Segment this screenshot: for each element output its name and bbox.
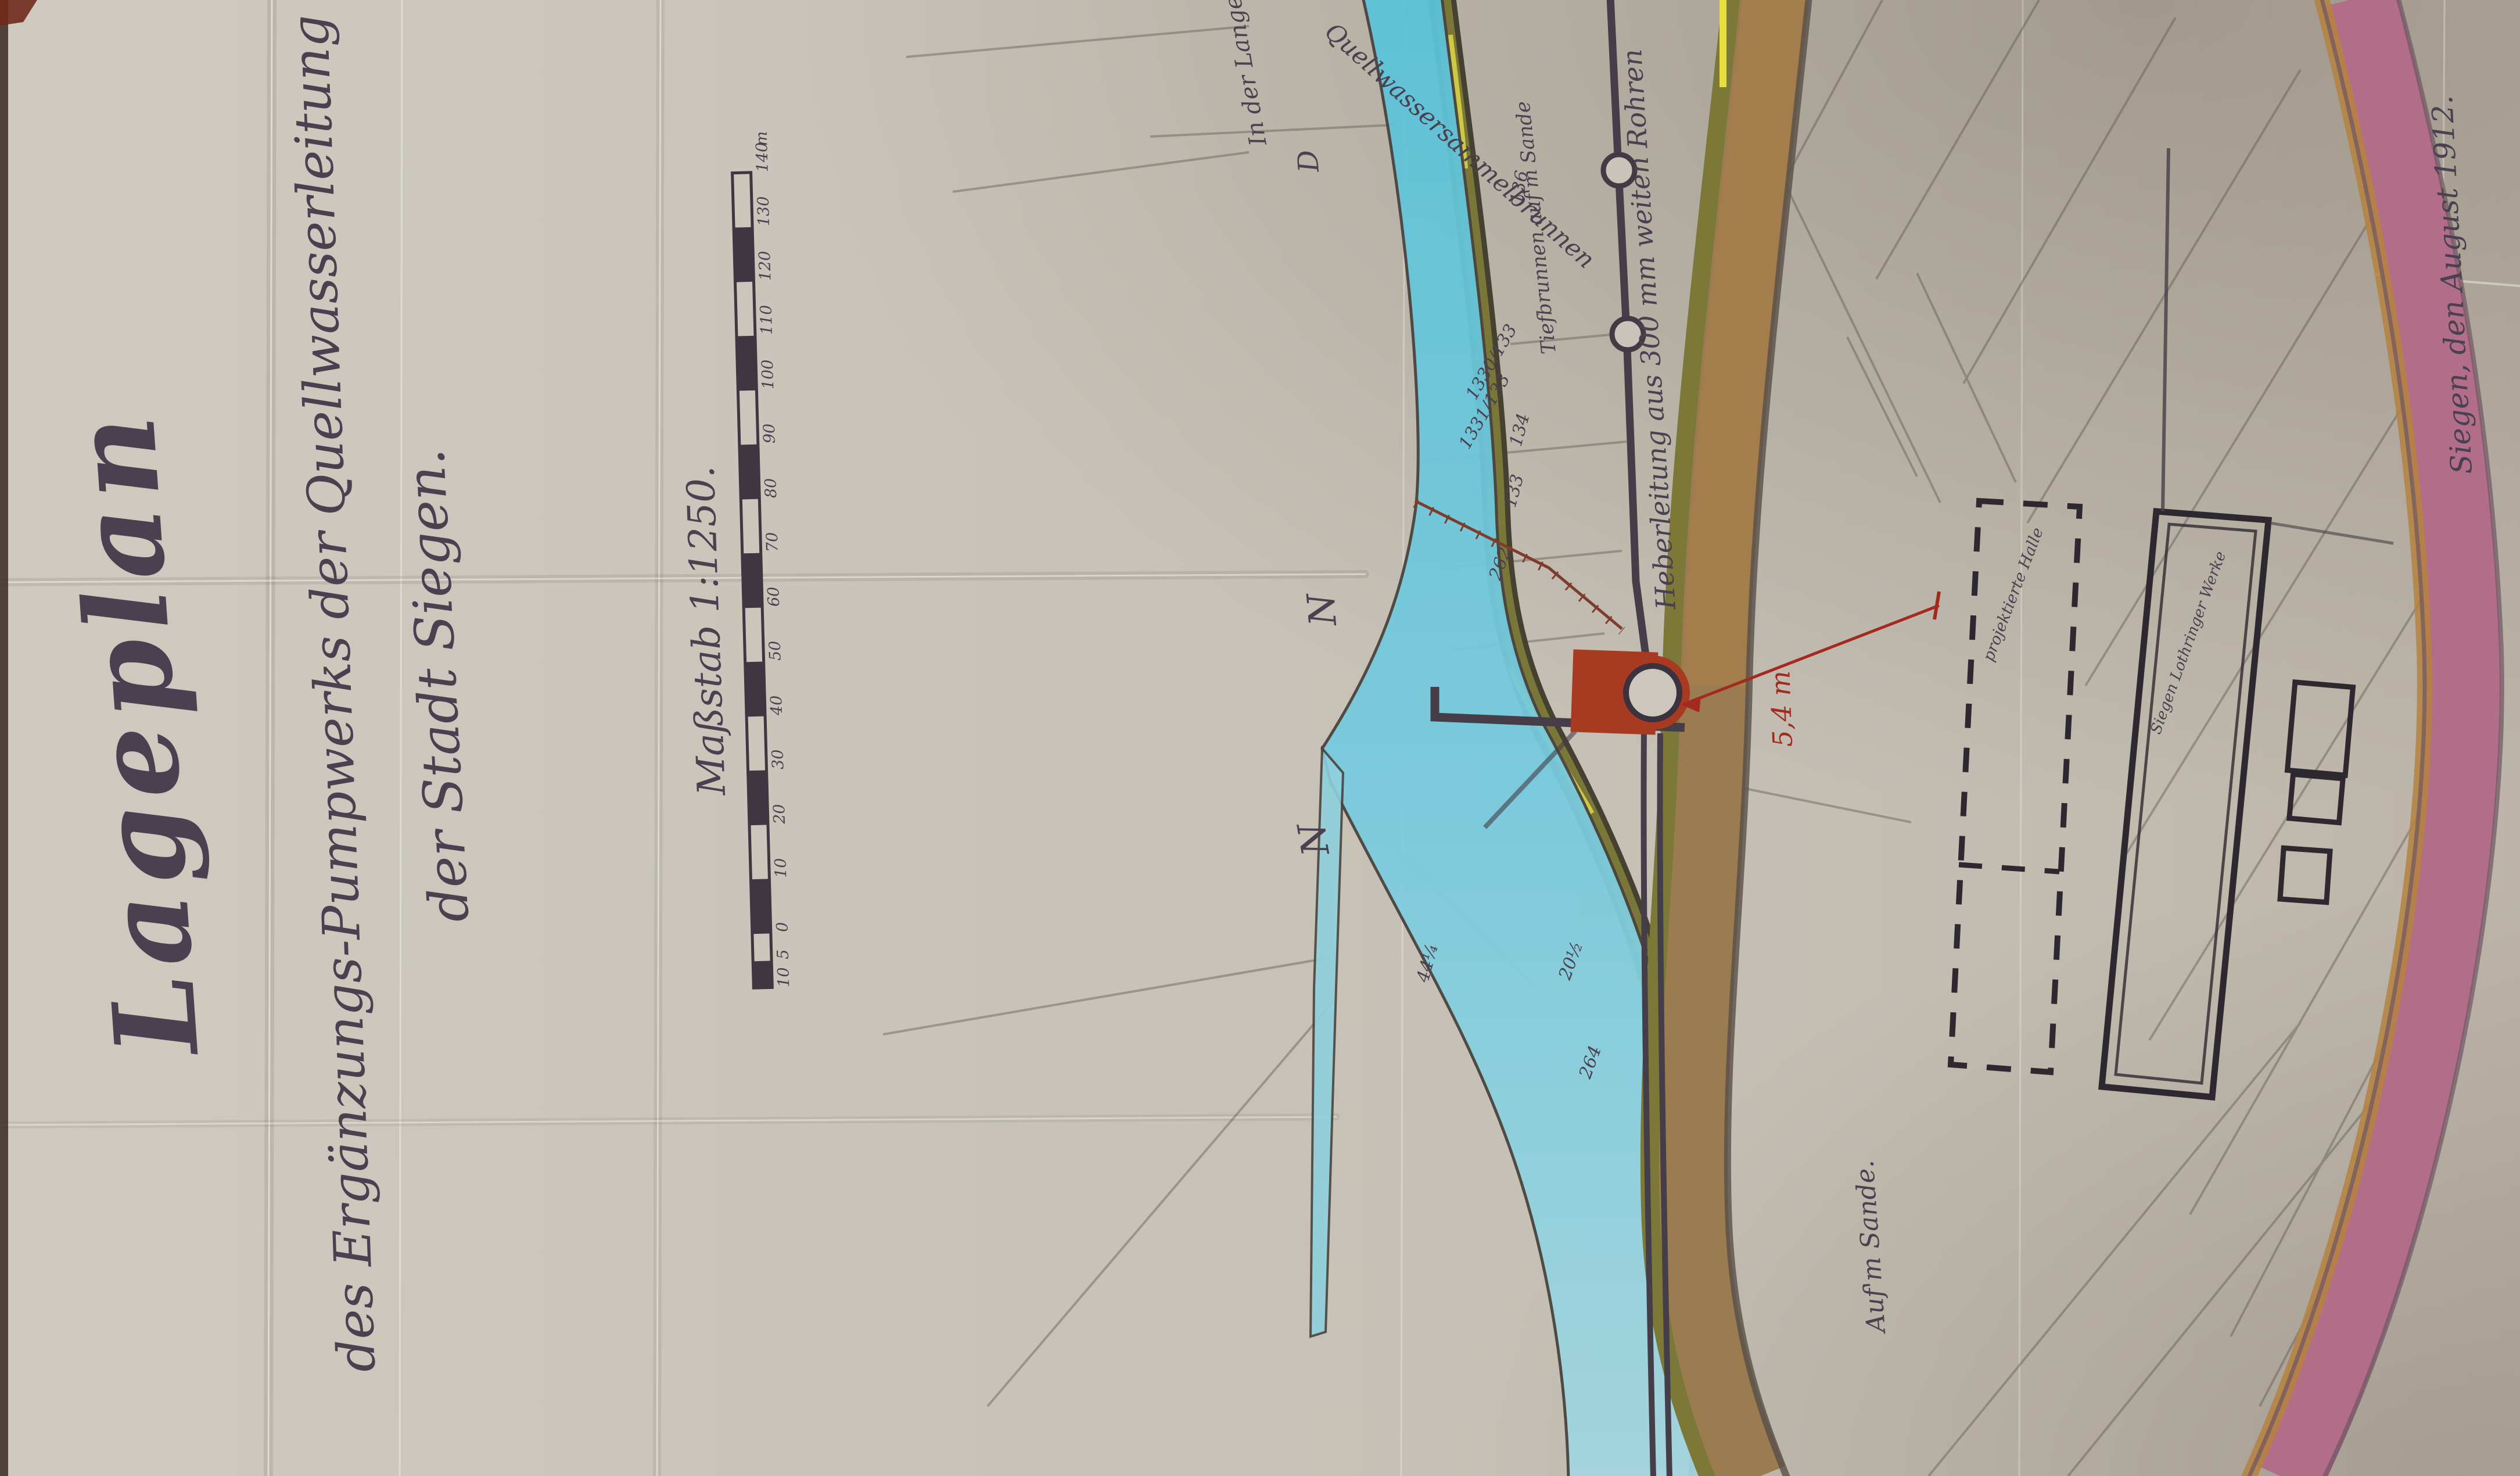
scale-tick: 10 [774,967,793,987]
scale-tick: 10 [771,858,790,878]
scale-tick: 100 [759,359,777,389]
scale-tick: 40 [767,695,786,716]
scale-tick: 80 [762,478,780,498]
scale-tick: 5 [774,949,792,959]
scale-tick: 90 [760,423,779,443]
scale-tick: 120 [756,250,774,281]
scale-tick: 0 [773,922,791,932]
scale-tick: 60 [764,586,783,607]
scale-tick: 20 [770,804,789,825]
pump-house-well [1626,666,1679,719]
scale-tick: 70 [763,532,782,552]
flourish-symbol-d: D [1291,149,1326,174]
scale-tick: 30 [769,749,788,769]
flourish-symbol-n1: N [1300,590,1345,629]
photo-edge-left [0,0,8,1476]
scale-tick: 130 [755,196,773,226]
map-canvas: 10 5 0 10 20 30 40 50 60 70 80 90 100 11… [0,0,2520,1476]
scale-tick: 110 [758,304,776,335]
photographed-site-plan: 10 5 0 10 20 30 40 50 60 70 80 90 100 11… [0,0,2520,1476]
scale-unit: m [753,131,771,146]
scale-tick: 50 [766,640,785,661]
red-dimension-label: 5,4 m [1764,670,1799,747]
